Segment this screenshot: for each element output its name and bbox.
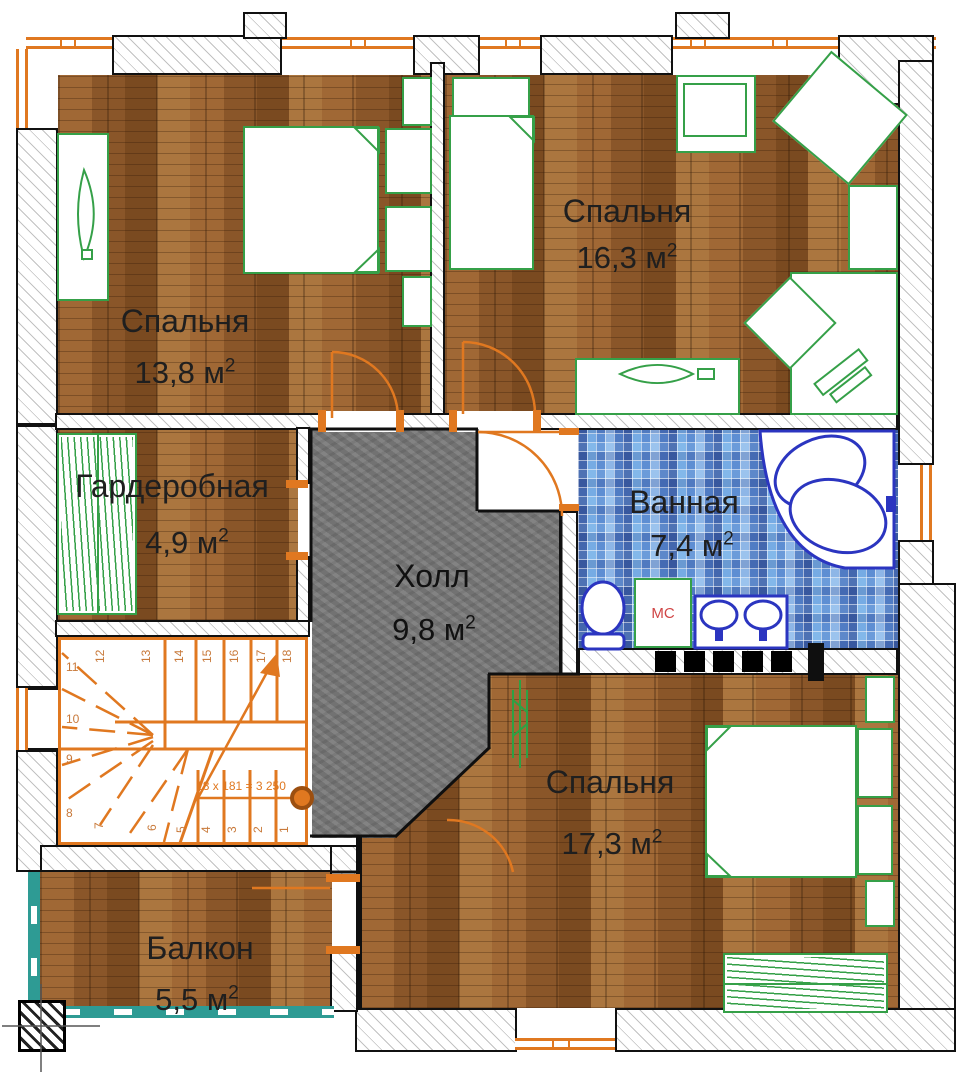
window-left-mid: [16, 688, 28, 750]
wall-bottom-1: [355, 1008, 517, 1052]
dresser-tv-bedroom1: [57, 133, 109, 301]
room-area-hall: 9,8 м2: [324, 612, 544, 648]
radiator-segment: [684, 651, 705, 672]
window-tick: [552, 1039, 570, 1049]
room-label-bedroom2: Спальня: [517, 193, 737, 230]
window-right: [920, 465, 932, 540]
bed-bedroom1: [243, 126, 379, 274]
wall-right-2: [898, 540, 934, 585]
radiator-segment: [771, 651, 792, 672]
wardrobe-rack: [57, 433, 137, 615]
room-area-balcony: 5,5 м2: [87, 982, 307, 1018]
window-tick: [350, 38, 366, 48]
radiator-segment: [742, 651, 763, 672]
room-area-bedroom3: 17,3 м2: [502, 826, 722, 862]
cabinet-bedroom2: [676, 75, 756, 153]
dresser-mirror-bedroom2: [575, 358, 740, 415]
room-area-bathroom: 7,4 м2: [582, 528, 802, 564]
wall-left-gap: [28, 688, 58, 750]
room-label-hall: Холл: [322, 558, 542, 595]
nightstand-bedroom1-bottom: [385, 206, 432, 272]
nightstand-bedroom3-top: [857, 728, 893, 798]
wall-partition-bedrooms: [430, 62, 445, 415]
radiator-segment: [713, 651, 734, 672]
shelf-bedroom3-bottom: [865, 880, 895, 927]
wall-top-pier-1: [112, 35, 282, 75]
nightstand-bedroom3-bottom: [857, 805, 893, 875]
wall-top-bump-1: [243, 12, 287, 39]
wall-wardrobe-right-lower: [296, 556, 310, 622]
desk-right-bedroom2: [848, 185, 898, 270]
wall-top-pier-2: [413, 35, 480, 75]
wall-wardrobe-bottom: [55, 620, 310, 637]
room-label-wardrobe: Гардеробная: [52, 468, 292, 505]
wall-right-1: [898, 60, 934, 465]
door-opening-bedroom1: [324, 411, 398, 432]
wall-left-1: [16, 128, 58, 425]
window-left-top: [16, 49, 28, 129]
wardrobe-bedroom3: [723, 953, 888, 1013]
radiator-bracket: [808, 643, 824, 681]
bed-single-headboard-bedroom2: [452, 77, 530, 117]
radiator-segment: [655, 651, 676, 672]
room-label-bedroom1: Спальня: [75, 303, 295, 340]
window-tick: [505, 38, 521, 48]
balcony-railing-left: [28, 872, 40, 1010]
door-arc-bathroom: [478, 432, 562, 516]
room-area-bedroom2: 16,3 м2: [517, 240, 737, 276]
radiator: [655, 651, 792, 672]
wall-right-3: [898, 583, 956, 1010]
room-area-wardrobe: 4,9 м2: [77, 525, 297, 561]
washing-machine: МС: [634, 578, 692, 648]
wall-top-bump-2: [675, 12, 730, 39]
balcony-corner-column: [18, 1000, 66, 1052]
bed-bedroom3: [705, 725, 857, 878]
wall-balcony-right-lower: [330, 952, 358, 1012]
shelf-bedroom1-top: [402, 77, 432, 126]
floor-plan: { "plan": { "sup": "2", "rooms": { "bedr…: [0, 0, 970, 1080]
nightstand-bedroom1-top: [385, 128, 432, 194]
wall-left-2: [16, 425, 58, 688]
window-tick: [690, 38, 706, 48]
shelf-bedroom1-bottom: [402, 276, 432, 327]
room-label-bathroom: Ванная: [574, 484, 794, 521]
staircase-area: [58, 637, 308, 845]
wardrobe-bedroom3-rail: [725, 983, 886, 985]
washing-machine-label: МС: [651, 605, 674, 622]
wall-bathroom-left-lower: [559, 511, 578, 675]
door-opening-bedroom2: [453, 411, 535, 432]
wall-bottom-2: [615, 1008, 956, 1052]
wall-top-pier-3: [540, 35, 673, 75]
wall-balcony-right-upper: [330, 845, 358, 878]
room-label-bedroom3: Спальня: [500, 764, 720, 801]
wall-stairs-balcony: [40, 845, 360, 872]
wardrobe-rack-rail: [97, 435, 99, 613]
shelf-bedroom3-top: [865, 676, 895, 723]
wall-wardrobe-right-upper: [296, 427, 310, 484]
window-tick: [772, 38, 788, 48]
room-area-bedroom1: 13,8 м2: [75, 355, 295, 391]
room-label-balcony: Балкон: [90, 930, 310, 967]
window-tick: [60, 38, 76, 48]
